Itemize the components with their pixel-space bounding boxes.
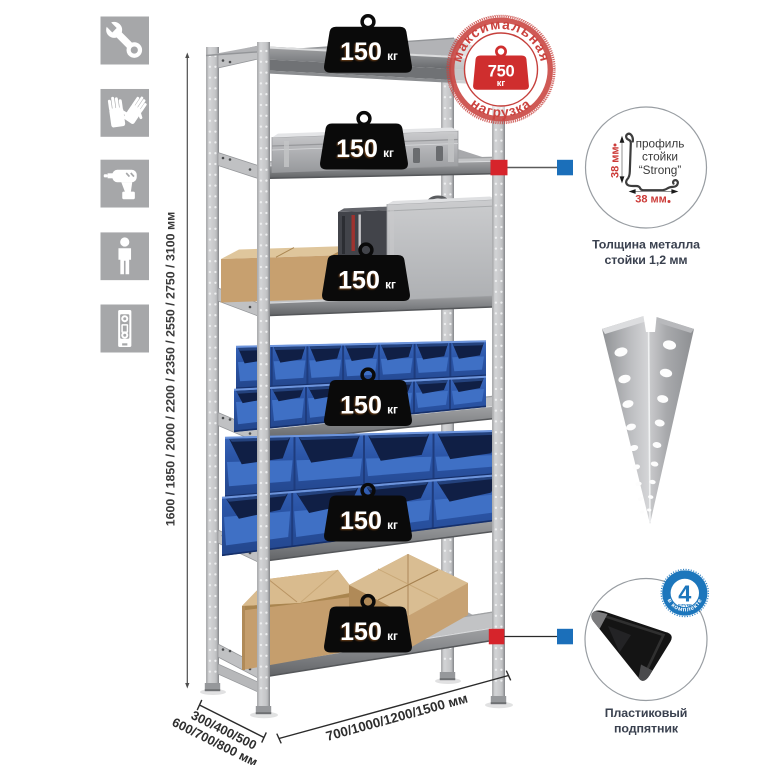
svg-text:кг: кг (387, 629, 398, 643)
svg-text:38 мм: 38 мм (610, 146, 622, 178)
svg-text:стойки 1,2 мм: стойки 1,2 мм (605, 253, 688, 267)
svg-text:150: 150 (340, 392, 382, 420)
svg-text:кг: кг (387, 49, 398, 63)
svg-text:“Strong”: “Strong” (639, 163, 682, 177)
svg-text:кг: кг (383, 146, 394, 160)
svg-text:38 мм: 38 мм (635, 194, 667, 206)
svg-text:кг: кг (387, 403, 398, 417)
svg-text:кг: кг (497, 78, 506, 88)
svg-text:150: 150 (340, 507, 382, 535)
svg-text:подпятник: подпятник (614, 722, 679, 736)
svg-text:Толщина металла: Толщина металла (592, 238, 700, 252)
svg-text:профиль: профиль (636, 137, 685, 151)
svg-text:1600 / 1850 / 2000 / 2200 / 23: 1600 / 1850 / 2000 / 2200 / 2350 / 2550 … (164, 212, 178, 527)
svg-text:кг: кг (385, 278, 396, 292)
svg-text:150: 150 (340, 618, 382, 646)
svg-text:150: 150 (340, 38, 382, 66)
svg-text:150: 150 (338, 267, 380, 295)
svg-text:кг: кг (387, 518, 398, 532)
svg-text:Пластиковый: Пластиковый (605, 706, 688, 720)
svg-text:150: 150 (336, 135, 378, 163)
svg-text:стойки: стойки (642, 150, 678, 164)
